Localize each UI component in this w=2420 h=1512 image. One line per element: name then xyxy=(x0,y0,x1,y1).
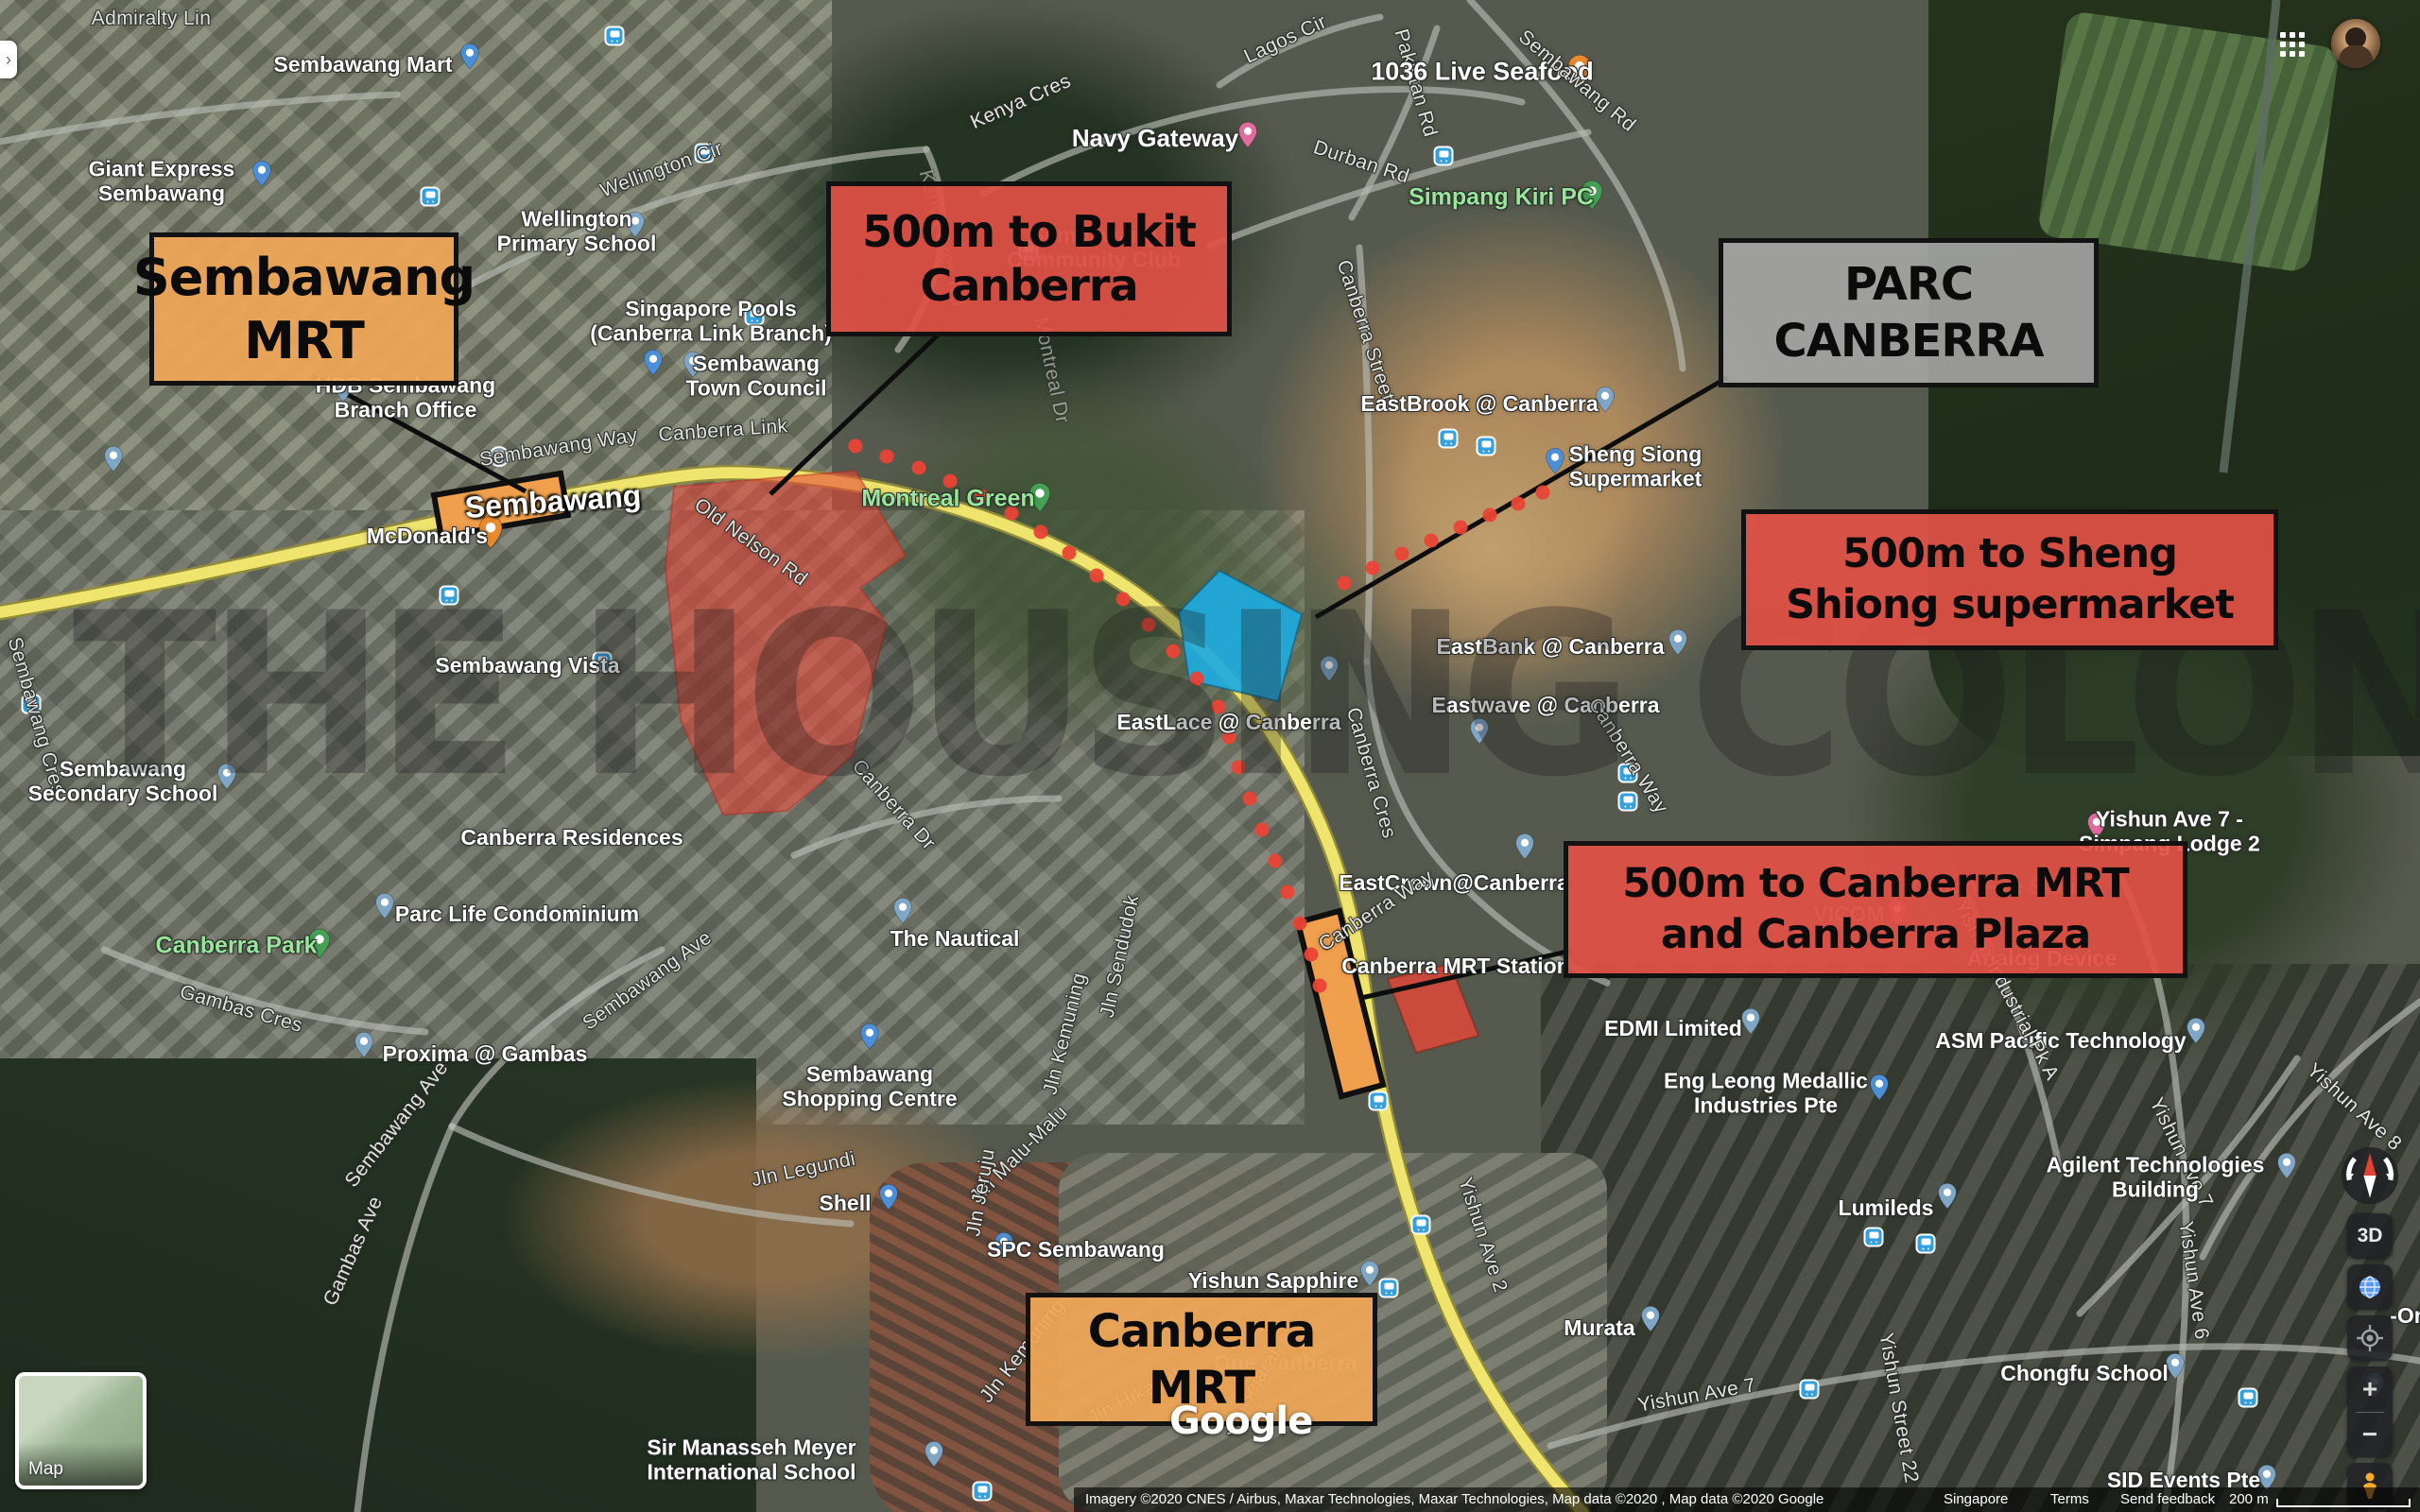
walking-route-dot xyxy=(1293,917,1307,931)
walking-route-dot xyxy=(1167,644,1181,659)
send-feedback-link[interactable]: Send feedback xyxy=(2120,1491,2215,1507)
map-label-murata[interactable]: Murata xyxy=(1564,1315,1634,1340)
side-panel-toggle[interactable]: › xyxy=(0,41,17,78)
transit-stop-icon[interactable] xyxy=(1436,148,1452,164)
road-path xyxy=(357,1126,452,1512)
map-label-proxima-gambas[interactable]: Proxima @ Gambas xyxy=(383,1041,588,1066)
place-pin[interactable] xyxy=(1320,656,1339,687)
compass-control[interactable] xyxy=(2339,1144,2401,1207)
location-target-icon xyxy=(2356,1324,2384,1352)
map-label-giant-express-sembawang[interactable]: Giant ExpressSembawang xyxy=(89,157,235,207)
walking-route-dot xyxy=(1090,569,1104,583)
map-label-sembawang-secondary-school[interactable]: SembawangSecondary School xyxy=(28,757,218,807)
map-label-chongfu-school[interactable]: Chongfu School xyxy=(2000,1361,2169,1385)
map-label-navy-gateway[interactable]: Navy Gateway xyxy=(1072,125,1238,153)
walking-route-dot xyxy=(1034,525,1048,540)
place-pin[interactable] xyxy=(1515,833,1534,865)
place-pin[interactable] xyxy=(893,898,912,929)
walking-route-dot xyxy=(1190,672,1204,686)
map-label-asm-pacific-technology[interactable]: ASM Pacific Technology xyxy=(1935,1028,2186,1053)
chevron-right-icon: › xyxy=(6,50,11,70)
globe-icon xyxy=(2356,1273,2384,1301)
transit-stop-icon[interactable] xyxy=(1413,1217,1429,1233)
scale-label: 200 m xyxy=(2229,1491,2269,1507)
walking-route-dot xyxy=(1232,761,1246,775)
walking-route-dot xyxy=(1313,979,1327,993)
road-path xyxy=(2223,0,2276,472)
shopping-bag-pin[interactable] xyxy=(860,1023,879,1055)
place-pin[interactable] xyxy=(1360,1261,1379,1292)
walking-route-dot xyxy=(1483,508,1497,523)
map-label-eng-leong-medallic-industries-pte[interactable]: Eng Leong MedallicIndustries Pte xyxy=(1664,1069,1868,1119)
walking-route-dot xyxy=(1425,534,1439,548)
map-label-shell[interactable]: Shell xyxy=(820,1191,872,1215)
place-pin[interactable] xyxy=(2277,1153,2296,1184)
map-label-eastbrook-canberra[interactable]: EastBrook @ Canberra xyxy=(1360,391,1598,416)
transit-stop-icon[interactable] xyxy=(607,28,623,44)
map-viewport[interactable]: Admiralty LinSembawang MartGiant Express… xyxy=(0,0,2420,1512)
shopping-cart-pin[interactable] xyxy=(1546,448,1564,479)
transit-stop-icon[interactable] xyxy=(423,189,439,205)
place-pin[interactable] xyxy=(1470,718,1489,749)
walking-route-dot xyxy=(1395,547,1409,561)
shopping-bag-pin[interactable] xyxy=(460,43,479,75)
map-label-canberra-park[interactable]: Canberra Park xyxy=(156,933,318,960)
place-pin[interactable] xyxy=(375,893,394,924)
walking-route-dot xyxy=(1338,576,1352,591)
map-label-sir-manasseh-meyer-international-school[interactable]: Sir Manasseh MeyerInternational School xyxy=(647,1435,856,1486)
walking-route-dot xyxy=(1063,546,1077,560)
terms-link[interactable]: Terms xyxy=(2050,1491,2089,1507)
place-pin[interactable] xyxy=(2187,1018,2205,1049)
transit-stop-icon[interactable] xyxy=(1441,431,1457,447)
transit-stop-icon[interactable] xyxy=(1918,1236,1934,1252)
map-label-eastwave-canberra[interactable]: Eastwave @ Canberra xyxy=(1431,693,1659,717)
account-avatar[interactable] xyxy=(2331,19,2380,68)
transit-stop-icon[interactable] xyxy=(1866,1229,1882,1246)
map-label-the-nautical[interactable]: The Nautical xyxy=(890,926,1020,951)
map-label-admiralty-lin: Admiralty Lin xyxy=(92,8,212,30)
map-label-lumileds[interactable]: Lumileds xyxy=(1839,1195,1934,1220)
map-label-singapore-pools-canberra-link-branch[interactable]: Singapore Pools(Canberra Link Branch) xyxy=(590,297,832,347)
transit-stop-icon[interactable] xyxy=(1371,1093,1387,1109)
annotation-box-bukit-canberra: 500m to BukitCanberra xyxy=(826,181,1232,336)
walking-route-dot xyxy=(1454,521,1468,535)
graduation-cap-pin[interactable] xyxy=(104,446,123,477)
my-location-button[interactable] xyxy=(2347,1315,2393,1361)
place-pin[interactable] xyxy=(354,1032,373,1063)
walking-route-dot xyxy=(849,439,863,454)
map-label-eastcrown-canberra[interactable]: EastCrown@Canberra xyxy=(1339,870,1569,895)
map-label-agilent-technologies-building[interactable]: Agilent TechnologiesBuilding xyxy=(2047,1153,2265,1203)
map-inset-label: Map xyxy=(28,1459,63,1480)
annotation-box-parc-canberra: PARCCANBERRA xyxy=(1719,238,2099,387)
walking-route-dot xyxy=(1116,593,1131,607)
annotation-box-sembawang-mrt: SembawangMRT xyxy=(149,232,458,386)
transit-stop-icon[interactable] xyxy=(1620,794,1636,810)
annotation-box-canberra-mrt-plaza: 500m to Canberra MRTand Canberra Plaza xyxy=(1564,841,2187,978)
map-label-simpang-kiri-pc[interactable]: Simpang Kiri PC xyxy=(1409,184,1594,212)
scale-bar xyxy=(2276,1499,2411,1507)
map-label-sembawang-mart[interactable]: Sembawang Mart xyxy=(273,52,452,77)
graduation-cap-pin[interactable] xyxy=(217,764,236,795)
walking-route-dot xyxy=(912,461,926,475)
map-label-on[interactable]: -On xyxy=(2390,1303,2420,1328)
zoom-control[interactable]: + − xyxy=(2347,1366,2393,1457)
map-label-eastbank-canberra[interactable]: EastBank @ Canberra xyxy=(1436,634,1664,659)
globe-layer-button[interactable] xyxy=(2347,1264,2393,1310)
map-label-sembawang-shopping-centre[interactable]: SembawangShopping Centre xyxy=(782,1062,957,1112)
place-pin[interactable] xyxy=(1741,1008,1760,1039)
place-pin[interactable] xyxy=(1596,387,1615,418)
walking-route-dot xyxy=(1243,792,1257,806)
transit-stop-icon[interactable] xyxy=(975,1484,991,1500)
walking-route-dot xyxy=(1305,948,1319,962)
map-label-sheng-siong-supermarket[interactable]: Sheng SiongSupermarket xyxy=(1569,442,1703,492)
zoom-out-button[interactable]: − xyxy=(2347,1413,2393,1457)
map-label-montreal-green[interactable]: Montreal Green xyxy=(861,486,1034,513)
road-path xyxy=(452,950,662,1126)
walking-route-dot xyxy=(1281,885,1295,900)
fuel-pin[interactable] xyxy=(879,1184,898,1215)
map-mode-inset[interactable]: Map xyxy=(15,1372,147,1489)
place-pin[interactable] xyxy=(1668,629,1687,661)
place-pin[interactable] xyxy=(1938,1183,1957,1214)
attribution-bar: Imagery ©2020 CNES / Airbus, Maxar Techn… xyxy=(1074,1487,2420,1512)
graduation-cap-pin[interactable] xyxy=(925,1441,943,1472)
shopping-cart-pin[interactable] xyxy=(252,161,271,192)
map-label-canberra-mrt-station[interactable]: Canberra MRT Station xyxy=(1341,954,1570,978)
map-label-mcdonald-s[interactable]: McDonald's xyxy=(367,524,488,548)
place-pin[interactable] xyxy=(1641,1306,1660,1337)
walking-route-dot xyxy=(1366,561,1380,576)
lock-pin[interactable] xyxy=(1870,1074,1889,1106)
map-label-spc-sembawang[interactable]: SPC Sembawang xyxy=(987,1237,1165,1262)
walking-route-dot xyxy=(1269,854,1283,868)
road-path xyxy=(0,94,397,142)
map-label-parc-life-condominium[interactable]: Parc Life Condominium xyxy=(395,902,639,926)
hotel-bed-pin[interactable] xyxy=(1238,122,1257,153)
3d-view-button[interactable]: 3D xyxy=(2347,1213,2393,1259)
walking-route-dot xyxy=(880,450,894,464)
map-label-wellington-primary-school[interactable]: WellingtonPrimary School xyxy=(497,207,657,257)
map-label-yishun-sapphire[interactable]: Yishun Sapphire xyxy=(1188,1268,1359,1293)
transit-stop-icon[interactable] xyxy=(1802,1382,1818,1398)
google-apps-grid-icon[interactable] xyxy=(2280,32,2286,38)
transit-stop-icon[interactable] xyxy=(1381,1280,1397,1297)
transit-stop-icon[interactable] xyxy=(441,588,458,604)
walking-route-dot xyxy=(1536,486,1550,500)
attribution-region: Singapore xyxy=(1944,1491,2008,1507)
annotation-box-sheng-shiong: 500m to ShengShiong supermarket xyxy=(1741,509,2278,650)
transit-stop-icon[interactable] xyxy=(1478,438,1495,455)
map-label-sembawang-vista[interactable]: Sembawang Vista xyxy=(435,653,619,678)
transit-stop-icon[interactable] xyxy=(2240,1390,2256,1406)
map-label-eastlace-canberra[interactable]: EastLace @ Canberra xyxy=(1116,710,1340,734)
map-label-canberra-residences[interactable]: Canberra Residences xyxy=(460,825,683,850)
map-label-sembawang-town-council[interactable]: SembawangTown Council xyxy=(685,352,826,402)
zoom-in-button[interactable]: + xyxy=(2347,1367,2393,1412)
shopping-bag-pin[interactable] xyxy=(644,350,663,381)
imagery-attribution: Imagery ©2020 CNES / Airbus, Maxar Techn… xyxy=(1085,1491,1824,1507)
walking-route-dot xyxy=(1512,497,1526,511)
map-label-edmi-limited[interactable]: EDMI Limited xyxy=(1604,1016,1742,1040)
google-logo: Google xyxy=(1169,1400,1312,1443)
walking-route-dot xyxy=(1142,618,1156,632)
walking-route-dot xyxy=(1255,823,1270,837)
